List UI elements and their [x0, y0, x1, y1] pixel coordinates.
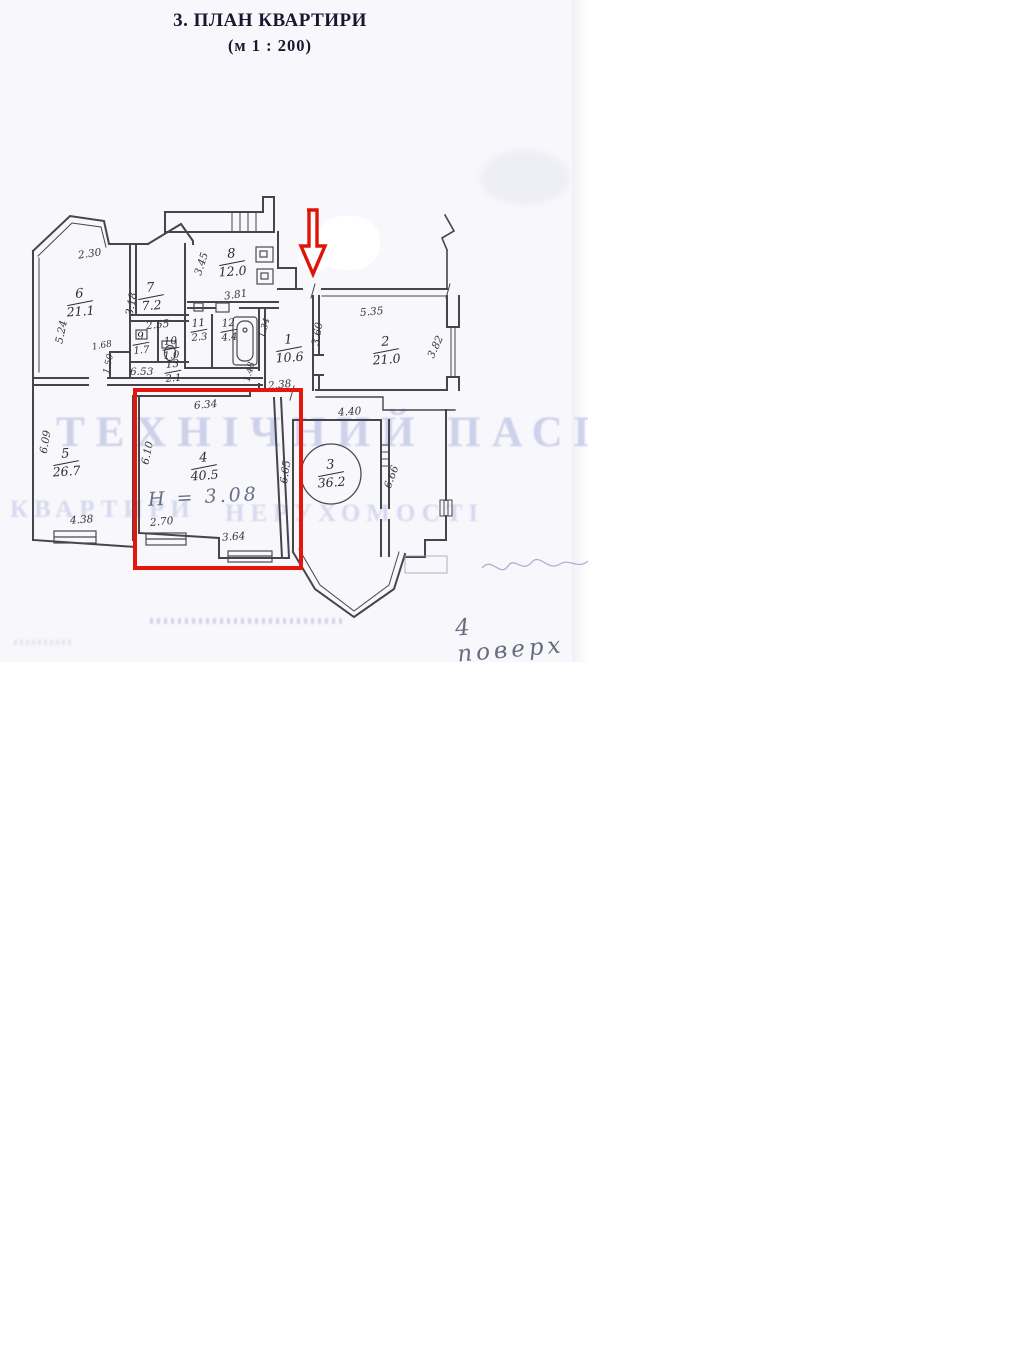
door-mark-2 — [216, 303, 229, 312]
scanned-document: { "page": { "title": "3. ПЛАН КВАРТИРИ",… — [0, 0, 1024, 1365]
plan-scale: (м 1 : 200) — [0, 36, 540, 56]
arrow-down-icon — [301, 210, 325, 274]
wall-corridor13-bottom — [33, 378, 262, 385]
counter-icon — [257, 269, 273, 284]
room-label-8: 8 12.0 — [217, 247, 247, 280]
stair-block — [165, 197, 274, 232]
room-label-11: 11 2.3 — [190, 318, 209, 345]
wall-kitchen-right — [278, 232, 296, 289]
bay-window-inner — [299, 549, 399, 611]
highlight-rectangle-room4 — [133, 388, 303, 570]
wall-steps-bottom-right — [405, 540, 446, 557]
page-title: 3. ПЛАН КВАРТИРИ (м 1 : 200) — [0, 10, 540, 56]
dim-5.35: 5.35 — [360, 305, 384, 319]
stair-treads — [232, 212, 256, 232]
room-label-1: 1 10.6 — [274, 333, 304, 366]
faint-signature — [482, 560, 588, 570]
vent-hatch — [381, 445, 389, 466]
room-label-12: 12 4.4 — [220, 318, 239, 345]
faint-stamp-line — [150, 618, 345, 624]
wall-right-outer — [447, 296, 459, 390]
dim-4.40: 4.40 — [338, 405, 362, 419]
bathtub-inner — [237, 321, 253, 361]
room-label-9: 9 1.7 — [132, 331, 151, 358]
dim-4.38: 4.38 — [70, 513, 94, 527]
balcony-outline — [405, 556, 447, 573]
bathtub-drain — [243, 328, 247, 332]
red-arrow-annotation — [296, 206, 334, 280]
stove-inner — [260, 251, 267, 257]
wall-break-symbol — [442, 215, 454, 289]
scanned-page: 3. ПЛАН КВАРТИРИ (м 1 : 200) ТЕХНІЧНИЙ П… — [0, 0, 588, 662]
stove-icon — [256, 247, 273, 262]
room-label-5: 5 26.7 — [51, 447, 81, 480]
window-right — [451, 327, 455, 377]
room-label-2: 2 21.0 — [371, 335, 401, 368]
wall-slant-block — [148, 224, 193, 244]
window-right-lower — [440, 500, 452, 516]
room-label-13: 13 2.1 — [164, 359, 183, 386]
faint-stamp-line-2 — [14, 640, 74, 645]
dim-2.55: 2.55 — [145, 318, 170, 332]
room-label-6: 6 21.1 — [65, 287, 95, 320]
dim-6.53: 6.53 — [130, 366, 153, 378]
counter-inner — [261, 273, 268, 279]
room-label-7: 7 7.2 — [137, 281, 165, 314]
room-label-3: 3 36.2 — [316, 458, 346, 491]
plan-title: 3. ПЛАН КВАРТИРИ — [173, 10, 367, 31]
